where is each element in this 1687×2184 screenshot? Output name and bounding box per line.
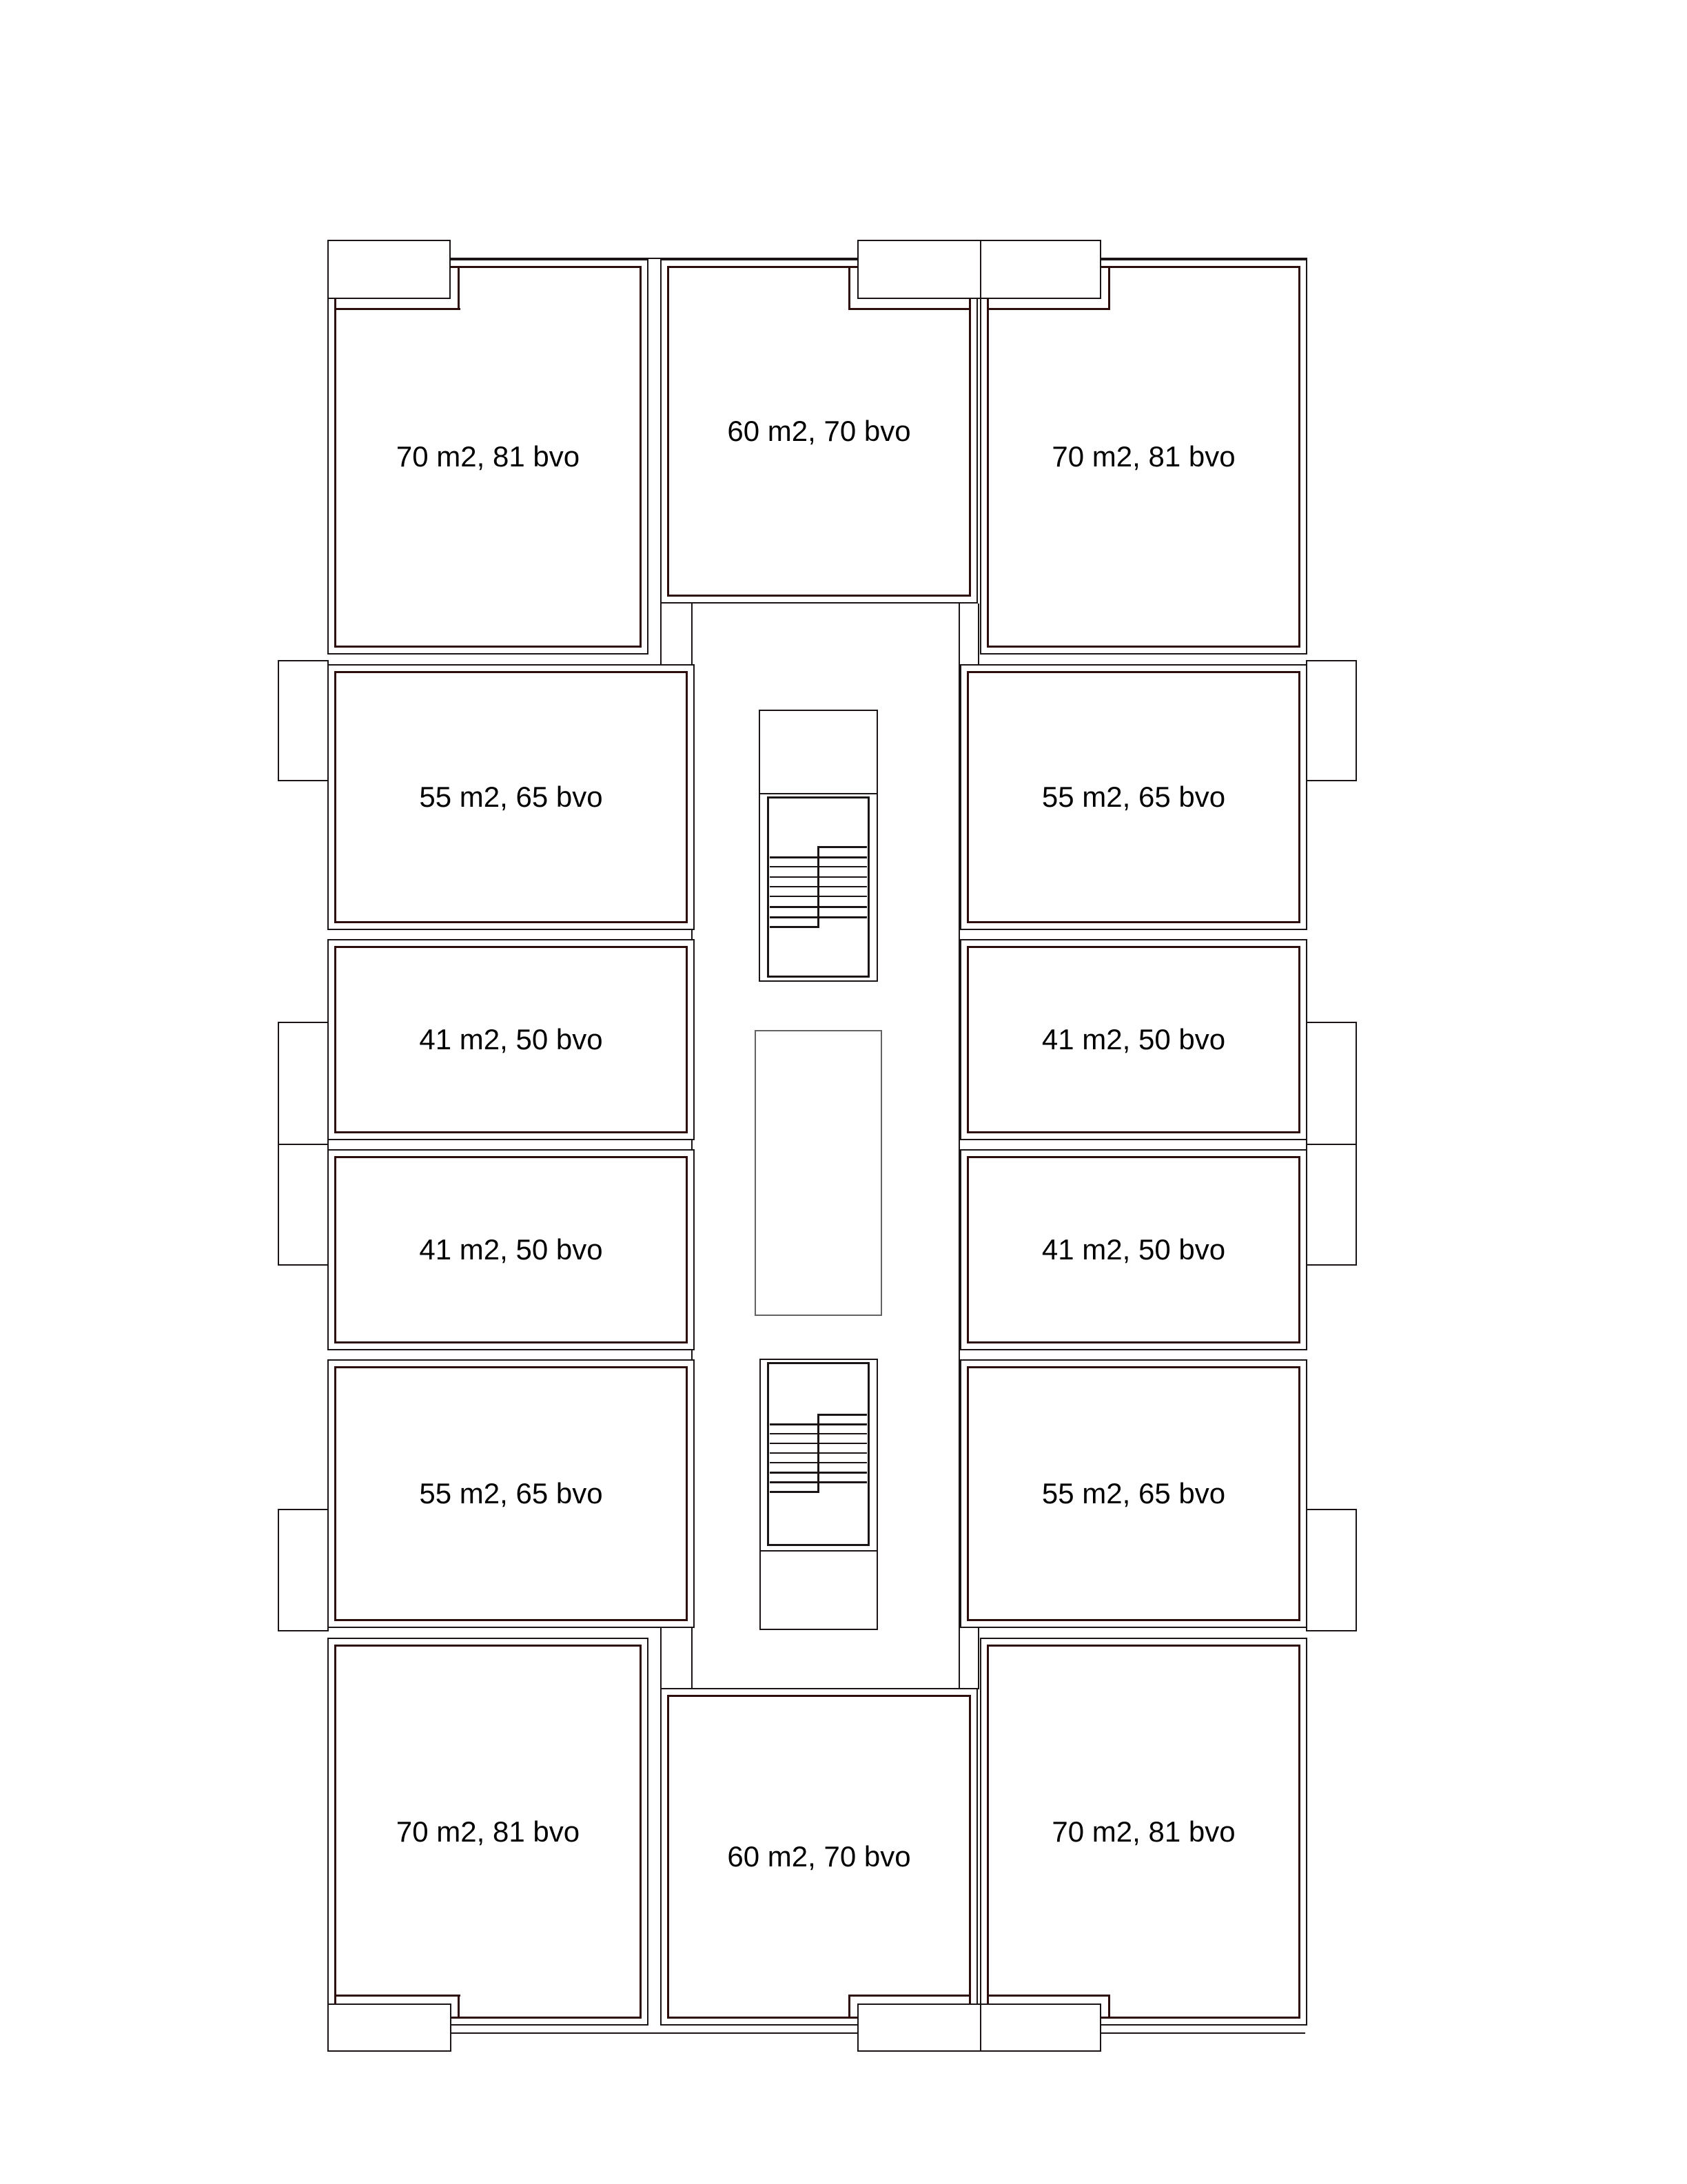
unit-top-middle-60: 60 m2, 70 bvo (660, 259, 978, 604)
balcony-tab-bottom-middle-pair (857, 2003, 1101, 2052)
wall-notch-line (335, 308, 460, 310)
wall-connector (978, 1627, 979, 1689)
unit-mid-right-55-lower: 55 m2, 65 bvo (960, 1359, 1307, 1628)
balcony-tab-top-middle-pair (857, 240, 1101, 299)
balcony-tab-right-upper (1306, 660, 1357, 781)
unit-mid-right-41-lower: 41 m2, 50 bvo (960, 1149, 1307, 1350)
unit-bottom-right-70: 70 m2, 81 bvo (980, 1638, 1307, 2026)
stair-step-line (818, 846, 867, 848)
unit-label: 70 m2, 81 bvo (329, 260, 647, 653)
unit-mid-left-41-upper: 41 m2, 50 bvo (327, 939, 695, 1140)
elevator-shaft (755, 1030, 882, 1316)
unit-mid-left-55-upper: 55 m2, 65 bvo (327, 664, 695, 930)
unit-top-right-70: 70 m2, 81 bvo (980, 259, 1307, 655)
wall-notch-line (335, 1995, 460, 1997)
wall-connector (660, 604, 662, 667)
wall-notch-line (848, 266, 850, 310)
balcony-tab-bottom-left (327, 2003, 451, 2052)
unit-label: 55 m2, 65 bvo (329, 666, 693, 929)
wall-notch-line (987, 1995, 1110, 1997)
stairwell-top-vestibule-divider (759, 793, 878, 794)
unit-label: 41 m2, 50 bvo (961, 940, 1306, 1139)
wall-connector (978, 604, 979, 667)
balcony-tab-right-lower (1306, 1509, 1357, 1631)
unit-bottom-middle-60: 60 m2, 70 bvo (660, 1688, 978, 2026)
unit-mid-left-41-lower: 41 m2, 50 bvo (327, 1149, 695, 1350)
unit-label: 55 m2, 65 bvo (329, 1361, 693, 1627)
unit-label: 41 m2, 50 bvo (329, 940, 693, 1139)
stair-step-line (770, 1491, 818, 1493)
unit-label: 41 m2, 50 bvo (329, 1151, 693, 1349)
stairwell-bottom-vestibule-divider (759, 1550, 878, 1552)
balcony-tab-left-lower (278, 1509, 329, 1631)
tab-divider (279, 1144, 327, 1145)
tab-divider (980, 241, 981, 298)
unit-label: 55 m2, 65 bvo (961, 1361, 1306, 1627)
stair-stringer (817, 846, 819, 928)
stair-step-line (770, 926, 818, 928)
wall-notch-line (848, 308, 971, 310)
tab-divider (1307, 1144, 1356, 1145)
stair-stringer (817, 1414, 819, 1493)
balcony-tab-left-upper (278, 660, 329, 781)
wall-notch-line (987, 308, 1110, 310)
unit-label: 70 m2, 81 bvo (329, 1639, 647, 2024)
unit-label: 60 m2, 70 bvo (662, 1689, 977, 2024)
wall-notch-line (848, 1995, 971, 1997)
unit-label: 55 m2, 65 bvo (961, 666, 1306, 929)
balcony-tab-top-left (327, 240, 451, 299)
wall-notch-line (458, 1995, 460, 2019)
wall-notch-line (1108, 1995, 1110, 2019)
unit-bottom-left-70: 70 m2, 81 bvo (327, 1638, 648, 2026)
floor-plan-canvas: 70 m2, 81 bvo 60 m2, 70 bvo 70 m2, 81 bv… (0, 0, 1687, 2184)
tab-divider (980, 2005, 981, 2050)
unit-mid-right-55-upper: 55 m2, 65 bvo (960, 664, 1307, 930)
unit-label: 70 m2, 81 bvo (981, 260, 1306, 653)
stair-step-line (818, 1414, 867, 1416)
unit-label: 60 m2, 70 bvo (662, 260, 977, 602)
wall-notch-line (458, 266, 460, 310)
wall-connector (660, 1627, 662, 1689)
unit-top-left-70: 70 m2, 81 bvo (327, 259, 648, 655)
unit-mid-right-41-upper: 41 m2, 50 bvo (960, 939, 1307, 1140)
unit-label: 70 m2, 81 bvo (981, 1639, 1306, 2024)
unit-mid-left-55-lower: 55 m2, 65 bvo (327, 1359, 695, 1628)
unit-label: 41 m2, 50 bvo (961, 1151, 1306, 1349)
wall-notch-line (848, 1995, 850, 2019)
balcony-tab-right-middle-pair (1306, 1022, 1357, 1266)
wall-notch-line (1108, 266, 1110, 310)
balcony-tab-left-middle-pair (278, 1022, 329, 1266)
